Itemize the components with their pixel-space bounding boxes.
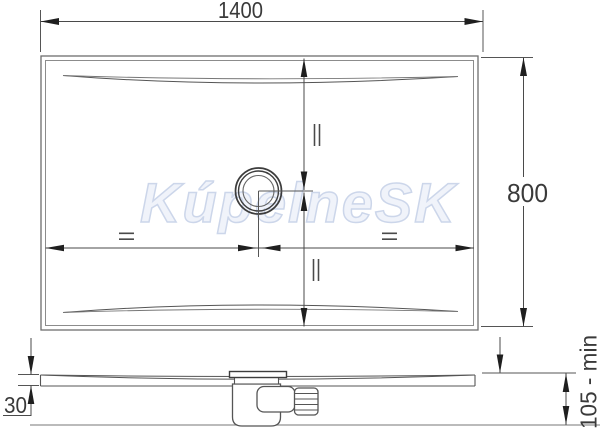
dimension-drain-horizontal: = = bbox=[46, 223, 475, 251]
tray-inner-edge bbox=[46, 61, 474, 326]
arrow-left-icon bbox=[262, 245, 281, 252]
arrow-down-icon bbox=[497, 355, 504, 374]
siphon-nut bbox=[295, 388, 319, 415]
arrow-down-icon bbox=[28, 356, 35, 375]
arrow-right-icon bbox=[456, 245, 475, 252]
slope-contour-top bbox=[63, 76, 458, 84]
slope-contour-top-2 bbox=[63, 76, 458, 79]
side-view bbox=[30, 372, 600, 427]
arrow-up-icon bbox=[563, 374, 570, 393]
thickness-dimension-label: 30 bbox=[4, 392, 27, 418]
equal-mark-top: || bbox=[312, 120, 322, 146]
technical-drawing-shower-tray: KúpelneSK 1400 bbox=[0, 0, 600, 429]
dimension-thickness-30: 30 bbox=[3, 338, 39, 418]
drawing-svg: 1400 800 || || bbox=[0, 0, 600, 429]
dimension-drain-vertical: || || bbox=[301, 59, 322, 327]
equal-mark-bottom: || bbox=[311, 255, 321, 281]
arrow-up-icon bbox=[520, 58, 527, 77]
dimension-min-height-105: 105 - min bbox=[482, 335, 600, 429]
drain-cover-plate bbox=[230, 372, 287, 378]
tray-outer-edge bbox=[41, 56, 478, 330]
arrow-down-icon bbox=[301, 308, 308, 327]
slope-contour-bottom-2 bbox=[63, 309, 458, 312]
width-dimension-label: 1400 bbox=[218, 0, 263, 23]
slope-contour-bottom bbox=[63, 305, 458, 313]
equal-mark-left: = bbox=[118, 223, 136, 249]
dimension-width-1400: 1400 bbox=[41, 0, 484, 52]
arrow-right-icon bbox=[465, 18, 484, 25]
arrow-right-icon bbox=[238, 245, 257, 252]
height-dimension-label: 800 bbox=[507, 178, 548, 208]
arrow-up-icon bbox=[301, 59, 308, 78]
arrow-up-icon bbox=[28, 386, 35, 405]
arrow-down-icon bbox=[563, 406, 570, 425]
drain-collar bbox=[235, 378, 279, 385]
plan-view bbox=[41, 56, 478, 330]
arrow-down-icon bbox=[301, 172, 308, 191]
siphon-outlet bbox=[257, 387, 295, 413]
arrow-left-icon bbox=[46, 245, 65, 252]
equal-mark-right: = bbox=[381, 223, 399, 249]
min-height-dimension-label: 105 - min bbox=[576, 335, 600, 429]
arrow-left-icon bbox=[41, 18, 60, 25]
arrow-down-icon bbox=[520, 308, 527, 327]
arrow-up-icon bbox=[301, 193, 308, 212]
dimension-height-800: 800 bbox=[481, 58, 548, 327]
